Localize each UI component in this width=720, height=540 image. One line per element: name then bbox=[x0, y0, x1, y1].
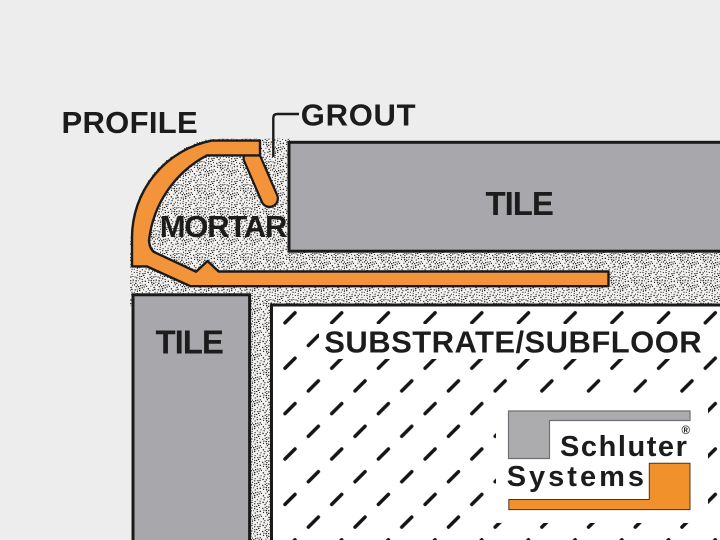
svg-text:MORTAR: MORTAR bbox=[160, 209, 287, 244]
svg-text:Schluter: Schluter bbox=[560, 431, 688, 463]
svg-text:SUBSTRATE/SUBFLOOR: SUBSTRATE/SUBFLOOR bbox=[324, 325, 702, 360]
svg-text:PROFILE: PROFILE bbox=[62, 105, 198, 140]
svg-text:TILE: TILE bbox=[155, 323, 223, 360]
svg-text:Systems: Systems bbox=[507, 461, 647, 493]
svg-text:TILE: TILE bbox=[485, 185, 553, 222]
svg-text:®: ® bbox=[682, 425, 691, 437]
svg-text:GROUT: GROUT bbox=[301, 97, 416, 132]
